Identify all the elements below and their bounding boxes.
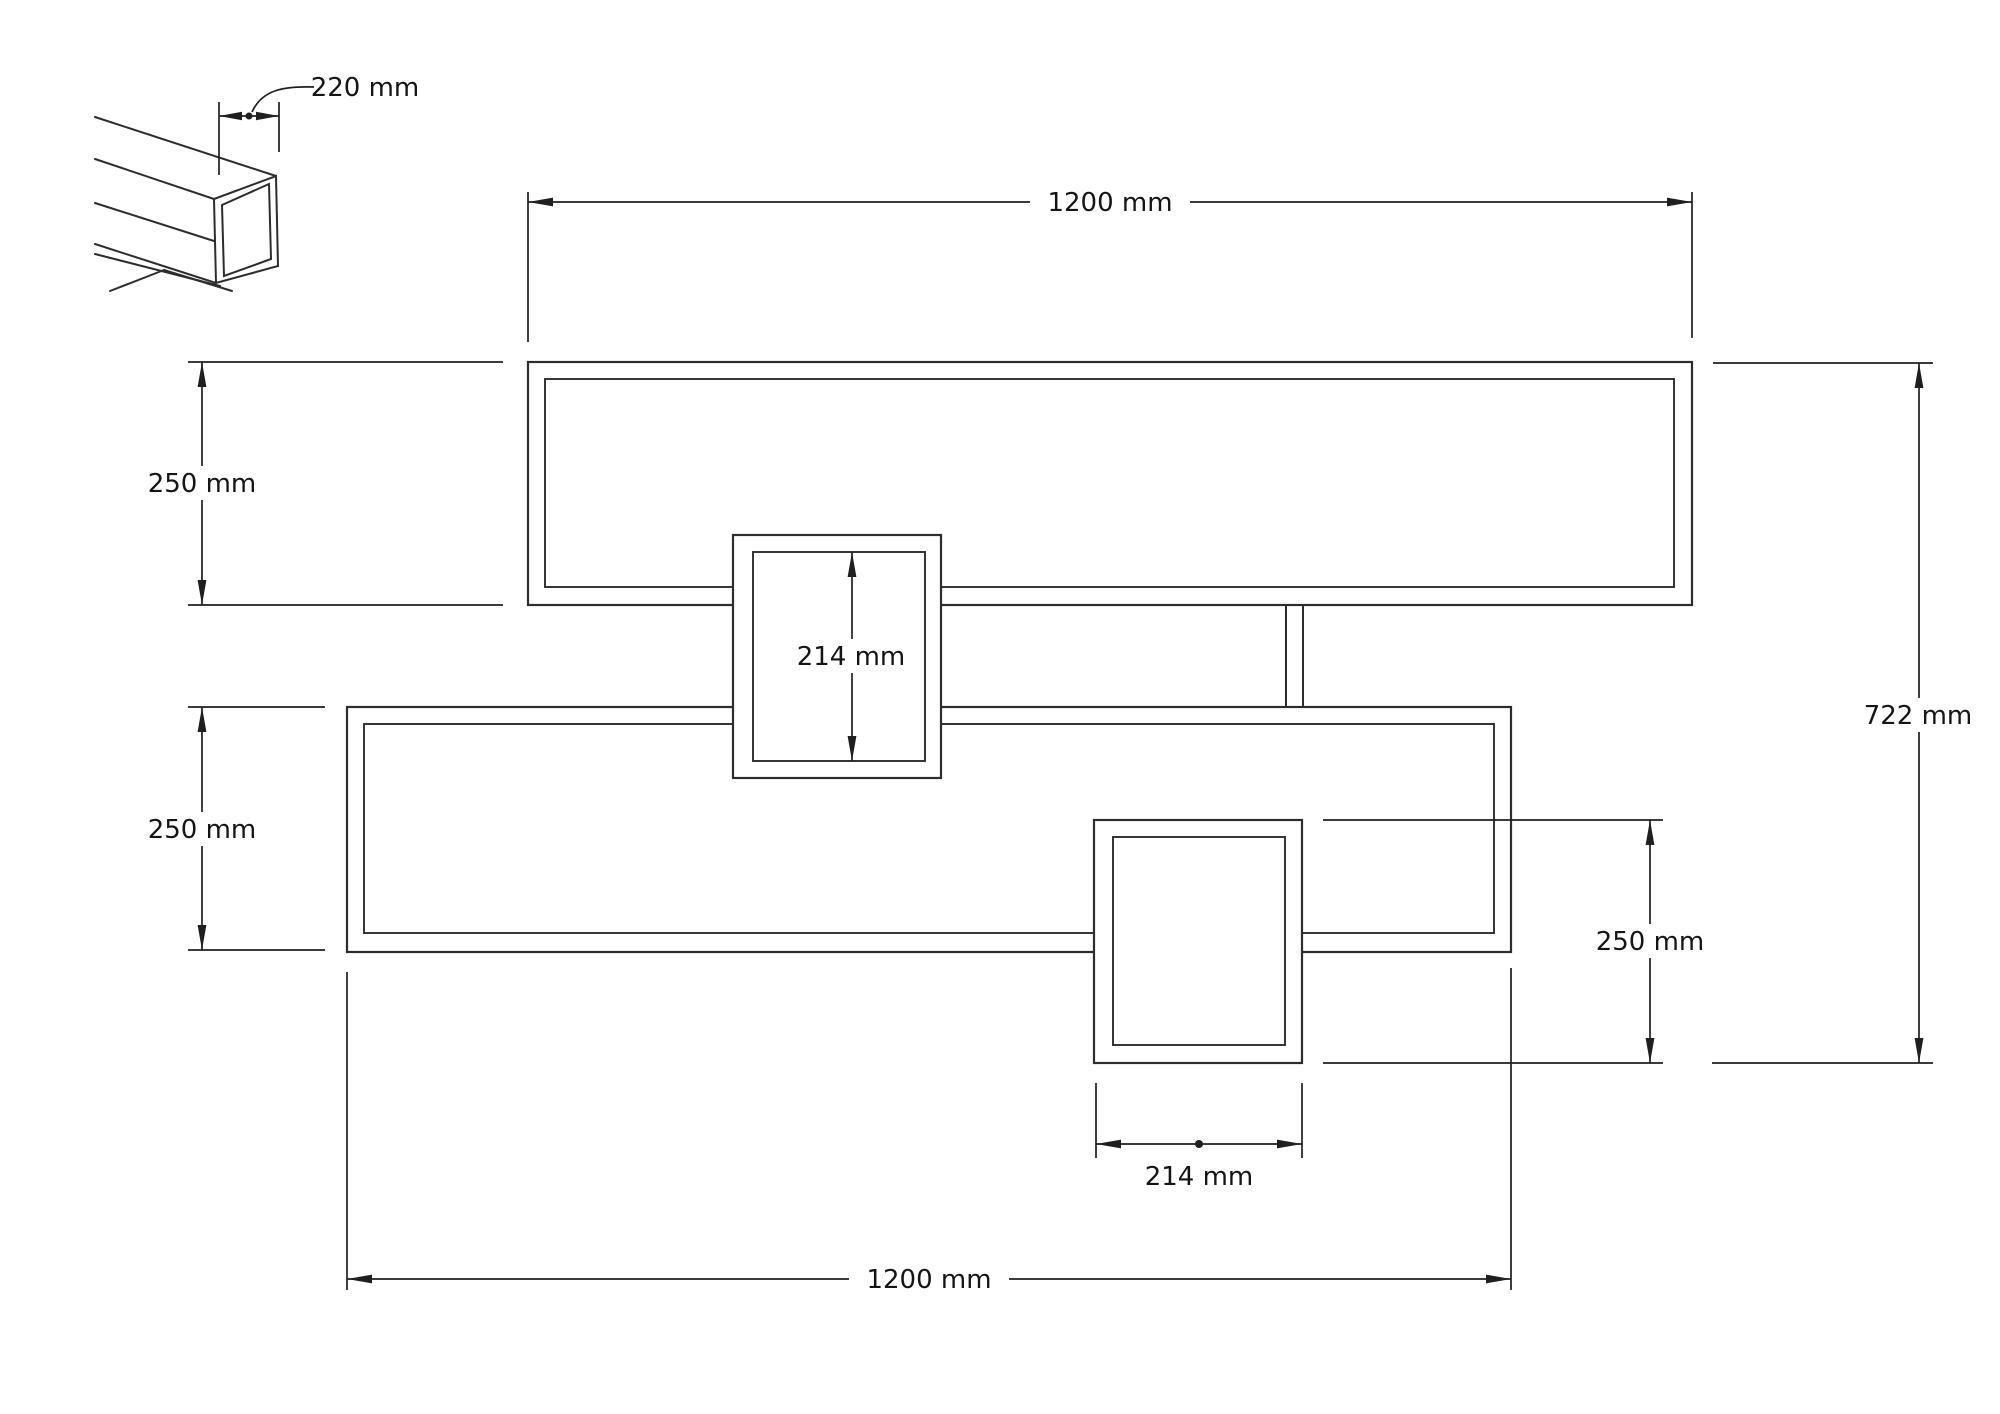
- dim-label-middle-box-height: 214 mm: [797, 642, 906, 672]
- arrowhead: [1096, 1140, 1121, 1149]
- arrowhead: [1646, 1038, 1655, 1063]
- isometric-detail-view: [95, 117, 278, 291]
- arrowhead: [198, 707, 207, 732]
- arrowhead: [1915, 1038, 1924, 1063]
- detail-end-face-inner: [222, 184, 271, 276]
- arrowhead: [1915, 363, 1924, 388]
- dim-label-upper-left-height: 250 mm: [148, 469, 257, 499]
- dim-bottom-width: 1200 mm: [347, 968, 1511, 1296]
- dim-center-dot: [1195, 1140, 1203, 1148]
- upper-shelf-outline: [528, 362, 1692, 605]
- arrowhead: [219, 112, 242, 120]
- dim-top-width: 1200 mm: [528, 185, 1692, 342]
- front-elevation-view: [347, 362, 1692, 1063]
- dim-center-dot: [246, 113, 253, 120]
- detail-bottom-near-edge: [95, 244, 216, 283]
- right-box-outline: [1094, 820, 1302, 1063]
- arrowhead: [1667, 198, 1692, 207]
- dim-label-top-width: 1200 mm: [1047, 188, 1172, 218]
- detail-bottom-cut-edge: [110, 270, 164, 291]
- leader-line: [252, 87, 314, 112]
- arrowhead: [528, 198, 553, 207]
- dim-detail-depth: 220 mm: [219, 73, 419, 175]
- arrowhead: [256, 112, 279, 120]
- dim-label-right-box-height: 250 mm: [1596, 927, 1705, 957]
- dim-label-bottom-box-width: 214 mm: [1145, 1162, 1254, 1192]
- dimension-annotations: 220 mm 1200 mm 250 mm: [145, 73, 1977, 1296]
- dim-right-box-height: 250 mm: [1323, 820, 1707, 1063]
- drawing-canvas: 220 mm 1200 mm 250 mm: [0, 0, 2000, 1414]
- dim-label-bottom-width: 1200 mm: [866, 1265, 991, 1295]
- arrowhead: [198, 580, 207, 605]
- arrowhead: [1646, 820, 1655, 845]
- dim-label-total-height: 722 mm: [1864, 701, 1973, 731]
- connector-post: [1286, 605, 1303, 707]
- arrowhead: [1486, 1275, 1511, 1284]
- arrowhead: [198, 925, 207, 950]
- dim-label-detail-depth: 220 mm: [311, 73, 420, 103]
- dim-lower-left-height: 250 mm: [145, 707, 325, 950]
- arrowhead: [198, 362, 207, 387]
- dim-upper-left-height: 250 mm: [145, 362, 503, 605]
- dim-total-height: 722 mm: [1712, 363, 1977, 1063]
- dim-bottom-box-width: 214 mm: [1096, 1083, 1302, 1192]
- detail-side-inner-edge: [95, 203, 214, 241]
- detail-top-near-edge: [95, 159, 214, 199]
- arrowhead: [347, 1275, 372, 1284]
- arrowhead: [1277, 1140, 1302, 1149]
- dim-label-lower-left-height: 250 mm: [148, 815, 257, 845]
